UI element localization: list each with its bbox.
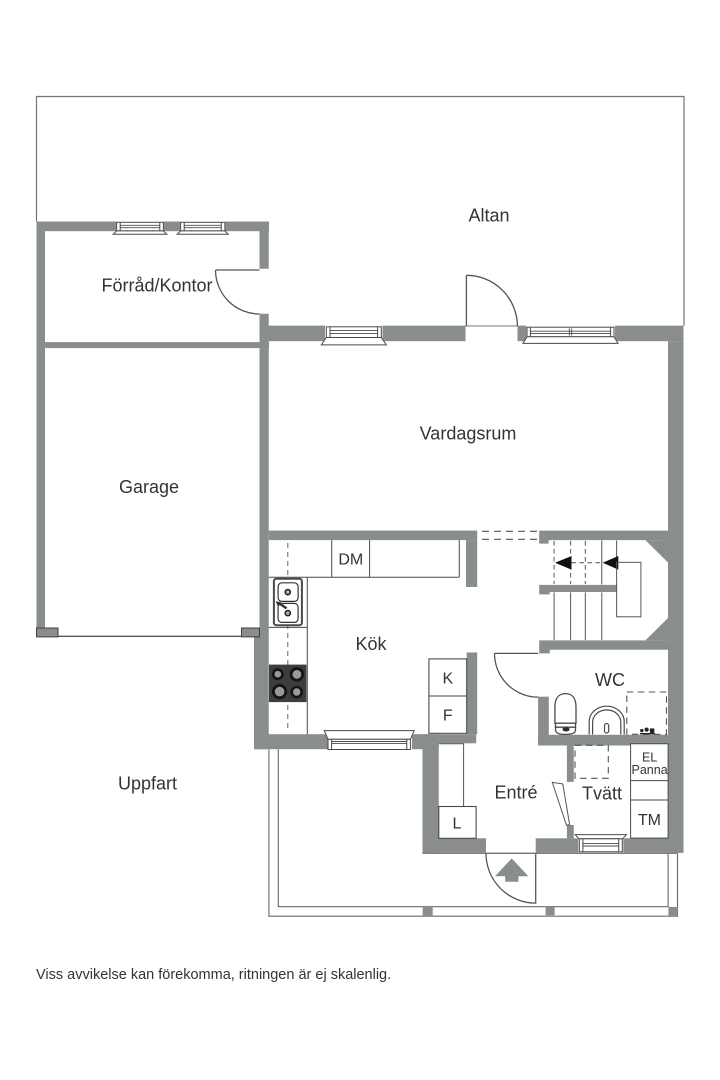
svg-text:Altan: Altan <box>468 205 509 225</box>
svg-text:F: F <box>443 708 453 725</box>
svg-text:Entré: Entré <box>494 783 537 803</box>
svg-text:Uppfart: Uppfart <box>118 774 177 794</box>
svg-text:DM: DM <box>338 552 363 569</box>
svg-text:Panna: Panna <box>632 763 668 777</box>
svg-text:Viss avvikelse kan förekomma,: Viss avvikelse kan förekomma, ritningen … <box>36 967 391 983</box>
svg-text:TM: TM <box>638 812 661 829</box>
svg-text:Kök: Kök <box>355 634 387 654</box>
svg-text:Vardagsrum: Vardagsrum <box>420 424 517 444</box>
svg-text:Tvätt: Tvätt <box>582 784 622 804</box>
svg-text:L: L <box>453 816 462 833</box>
svg-text:Förråd/Kontor: Förråd/Kontor <box>101 276 212 296</box>
svg-text:K: K <box>442 671 453 688</box>
svg-text:WC: WC <box>595 670 625 690</box>
svg-text:Garage: Garage <box>119 477 179 497</box>
